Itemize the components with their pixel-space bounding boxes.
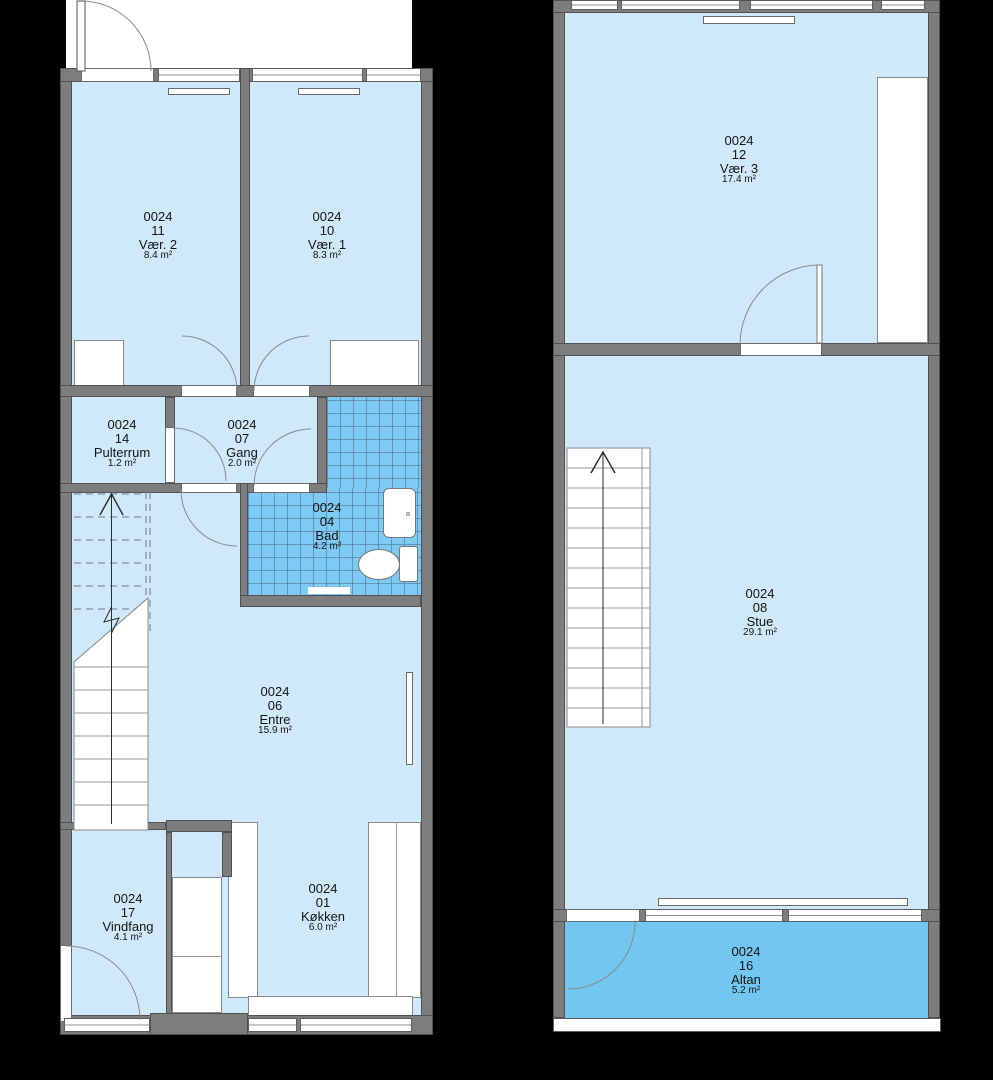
bedroom1-radiator [298, 88, 360, 95]
room-name: Altan [731, 973, 761, 987]
room-number: 10 [308, 224, 346, 238]
room-number: 07 [226, 432, 258, 446]
shower-drain [308, 587, 350, 594]
bedroom2-wardrobe [74, 340, 124, 386]
wall-bedroom-divider [240, 68, 250, 395]
wall-bath-bottom [240, 595, 421, 607]
room-area: 1.2 m² [94, 459, 150, 470]
room-area: 29.1 m² [743, 628, 777, 639]
wall-corridor-bath [317, 397, 327, 490]
bedroom1-window-b [366, 68, 421, 82]
room-code: 0024 [743, 587, 777, 601]
hall-closet [172, 877, 222, 1013]
toilet-tank [399, 546, 418, 582]
room-name: Vær. 3 [720, 162, 758, 176]
livingroom-window-b [788, 909, 922, 922]
wall-bedrooms-bottom [60, 385, 433, 397]
room-area: 4.2 m² [313, 542, 342, 553]
room-label-vaer2: 0024 11 Vær. 2 8.4 m² [139, 210, 177, 262]
room-number: 11 [139, 224, 177, 238]
room-number: 08 [743, 601, 777, 615]
room-code: 0024 [301, 882, 345, 896]
room-number: 01 [301, 896, 345, 910]
room-area: 8.4 m² [139, 251, 177, 262]
upper-top-window-c [750, 0, 873, 10]
room-label-vaer1: 0024 10 Vær. 1 8.3 m² [308, 210, 346, 262]
balcony-door-opening [566, 909, 640, 922]
upper-top-window-a [571, 0, 618, 10]
room-code: 0024 [308, 210, 346, 224]
corridor-entry-opening [181, 483, 237, 493]
room-number: 16 [731, 959, 761, 973]
kitchen-window-b [300, 1018, 412, 1032]
room-label-altan: 0024 16 Altan 5.2 m² [731, 945, 761, 997]
room-code: 0024 [731, 945, 761, 959]
kitchen-counter-right [368, 822, 421, 998]
room-name: Stue [743, 615, 777, 629]
room-area: 6.0 m² [301, 923, 345, 934]
room-area: 5.2 m² [731, 986, 761, 997]
room-area: 8.3 m² [308, 251, 346, 262]
room-name: Entre [258, 713, 292, 727]
sink-faucet [406, 512, 410, 516]
room-name: Bad [313, 529, 342, 543]
upper-top-window-d [881, 0, 925, 10]
room-code: 0024 [720, 134, 758, 148]
room-name: Køkken [301, 910, 345, 924]
room-label-vaer3: 0024 12 Vær. 3 17.4 m² [720, 134, 758, 186]
bedroom2-radiator [168, 88, 230, 95]
room-label-vindfang: 0024 17 Vindfang 4.1 m² [102, 892, 153, 944]
exterior-area [66, 0, 412, 70]
room-number: 04 [313, 515, 342, 529]
vestibule-window [64, 1018, 150, 1032]
room-area: 15.9 m² [258, 726, 292, 737]
room-area: 17.4 m² [720, 175, 758, 186]
entry-hall-radiator [406, 672, 413, 765]
room-code: 0024 [102, 892, 153, 906]
room-label-entre: 0024 06 Entre 15.9 m² [258, 685, 292, 737]
toilet-bowl [358, 549, 400, 580]
kitchen-counter-right-edge [396, 822, 397, 998]
room-number: 06 [258, 699, 292, 713]
bathroom-floor-upper [327, 397, 421, 492]
livingroom-radiator [658, 898, 908, 906]
bedroom1-window-a [252, 68, 363, 82]
bedroom1-door-opening [253, 385, 310, 397]
room-code: 0024 [226, 418, 258, 432]
wall-vestibule-right [166, 832, 172, 1022]
room-name: Vær. 1 [308, 238, 346, 252]
room-name: Vindfang [102, 920, 153, 934]
entry-door-opening [81, 68, 154, 82]
livingroom-window-a [645, 909, 783, 922]
room-number: 12 [720, 148, 758, 162]
wall-closet-right [222, 832, 232, 877]
bathroom-door-opening [253, 483, 310, 493]
room-code: 0024 [258, 685, 292, 699]
upper-wall-left [553, 0, 565, 1018]
room-name: Pulterrum [94, 446, 150, 460]
bedroom1-wardrobe [330, 340, 419, 386]
room-code: 0024 [94, 418, 150, 432]
room-code: 0024 [313, 501, 342, 515]
bathroom-sink [383, 488, 416, 538]
wall-bath-left [240, 483, 248, 607]
ground-wall-right [421, 68, 433, 1035]
room-label-pulterrum: 0024 14 Pulterrum 1.2 m² [94, 418, 150, 470]
ground-wall-left [60, 68, 72, 1035]
room-label-stue: 0024 08 Stue 29.1 m² [743, 587, 777, 639]
wall-vestibule-top [60, 822, 166, 830]
room-label-gang: 0024 07 Gang 2.0 m² [226, 418, 258, 470]
wall-kitchen-top [166, 820, 232, 832]
bedroom3-closet [877, 77, 928, 343]
room-area: 4.1 m² [102, 933, 153, 944]
room-number: 14 [94, 432, 150, 446]
bedroom3-door-opening [740, 343, 822, 356]
room-label-koekken: 0024 01 Køkken 6.0 m² [301, 882, 345, 934]
bedroom2-window [158, 68, 240, 82]
room-name: Gang [226, 446, 258, 460]
floor-plan-canvas: 0024 11 Vær. 2 8.4 m² 0024 10 Vær. 1 8.3… [0, 0, 993, 1080]
vestibule-door-opening [60, 945, 72, 1022]
kitchen-window-a [248, 1018, 297, 1032]
balcony-railing [553, 1018, 941, 1032]
upper-top-window-b [621, 0, 740, 10]
bedroom2-door-opening [181, 385, 237, 397]
room-area: 2.0 m² [226, 459, 258, 470]
kitchen-counter-left [228, 822, 258, 998]
storage-door-opening [165, 427, 175, 483]
room-label-bad: 0024 04 Bad 4.2 m² [313, 501, 342, 553]
room-name: Vær. 2 [139, 238, 177, 252]
bedroom3-radiator [703, 16, 795, 24]
upper-wall-right [928, 0, 940, 1018]
room-code: 0024 [139, 210, 177, 224]
wall-bottom-middle [150, 1013, 248, 1035]
hall-closet-divider [172, 956, 222, 957]
room-number: 17 [102, 906, 153, 920]
